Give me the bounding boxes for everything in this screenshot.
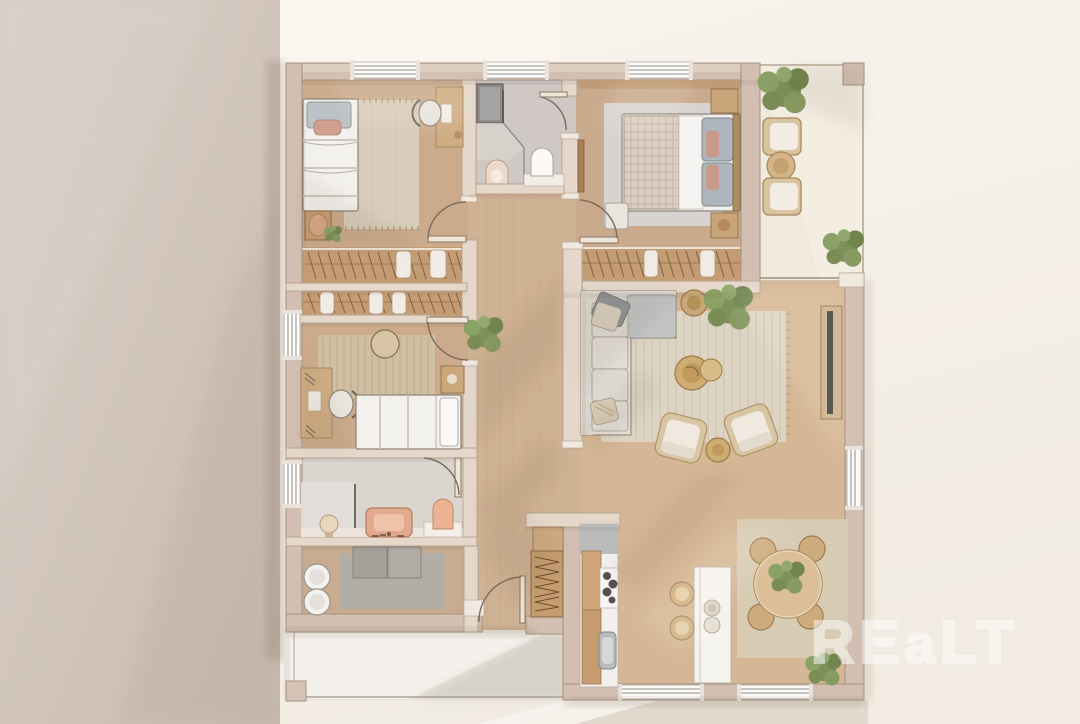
svg-text:REaLT: REaLT [811, 609, 1019, 676]
